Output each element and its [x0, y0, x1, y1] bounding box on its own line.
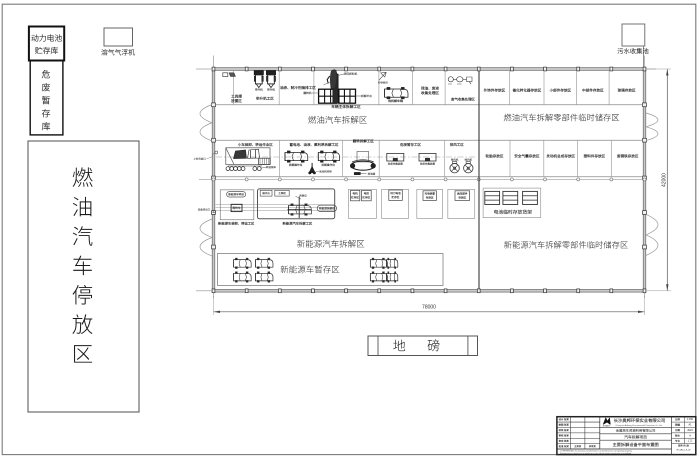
- svg-text:AOBANG: AOBANG: [603, 424, 611, 427]
- svg-text:1:150: 1:150: [687, 418, 694, 421]
- svg-text:工艺: 工艺: [688, 439, 693, 443]
- svg-text:RCJBCL-K-02: RCJBCL-K-02: [677, 450, 692, 452]
- svg-text:42000: 42000: [662, 173, 668, 187]
- svg-text:Reproduction or disclosure in: Reproduction or disclosure in whole or i…: [560, 452, 632, 455]
- svg-text:Changsha Aobang Environmental: Changsha Aobang Environmental Protection…: [615, 424, 661, 427]
- svg-text:78000: 78000: [422, 305, 436, 311]
- svg-text:2023: 2023: [687, 429, 693, 432]
